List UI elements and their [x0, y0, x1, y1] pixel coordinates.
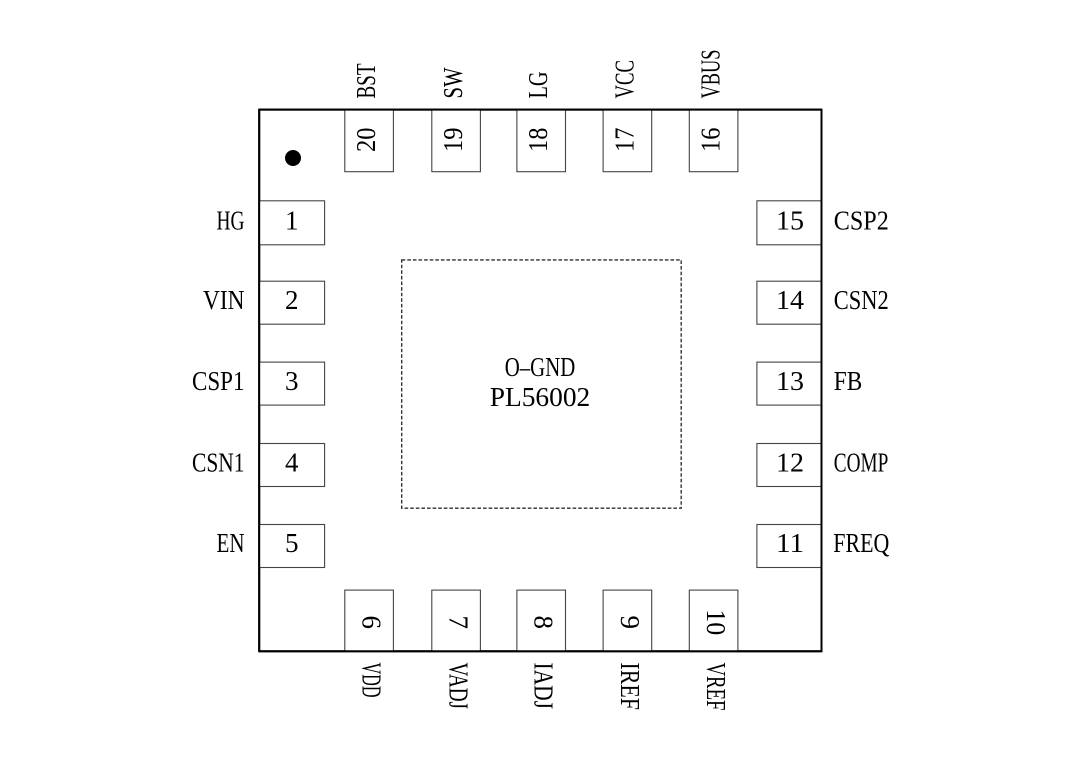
svg-text:CSP2: CSP2	[834, 205, 889, 235]
svg-text:FREQ: FREQ	[833, 528, 889, 558]
svg-text:IADJ: IADJ	[529, 663, 559, 710]
svg-text:LG: LG	[523, 72, 553, 99]
svg-text:CSN2: CSN2	[834, 285, 889, 315]
svg-text:20: 20	[351, 127, 381, 152]
svg-text:11: 11	[776, 528, 804, 558]
svg-text:16: 16	[696, 127, 726, 152]
svg-text:VADJ: VADJ	[444, 663, 474, 710]
svg-text:SW: SW	[438, 67, 468, 98]
svg-text:19: 19	[438, 127, 468, 152]
svg-text:14: 14	[776, 285, 805, 315]
svg-text:17: 17	[609, 127, 639, 152]
svg-text:3: 3	[285, 366, 299, 396]
svg-text:VREF: VREF	[701, 663, 731, 711]
svg-text:VIN: VIN	[203, 285, 245, 315]
svg-text:FB: FB	[834, 366, 863, 396]
svg-text:5: 5	[285, 528, 299, 558]
svg-text:O–GND: O–GND	[505, 351, 576, 382]
svg-text:VCC: VCC	[609, 60, 639, 99]
svg-text:4: 4	[285, 447, 299, 477]
svg-text:1: 1	[285, 205, 299, 235]
svg-text:18: 18	[523, 127, 553, 152]
svg-text:VBUS: VBUS	[696, 50, 726, 99]
svg-text:9: 9	[615, 615, 645, 629]
svg-text:EN: EN	[217, 528, 245, 558]
svg-text:10: 10	[701, 609, 731, 635]
svg-text:8: 8	[529, 615, 559, 629]
svg-text:7: 7	[444, 615, 474, 629]
svg-text:13: 13	[776, 366, 804, 396]
svg-text:COMP: COMP	[834, 447, 889, 477]
svg-text:CSN1: CSN1	[192, 447, 245, 477]
svg-text:CSP1: CSP1	[192, 366, 245, 396]
svg-text:HG: HG	[217, 205, 245, 235]
svg-text:6: 6	[357, 615, 387, 629]
svg-text:IREF: IREF	[615, 663, 645, 711]
svg-text:PL56002: PL56002	[490, 381, 591, 412]
svg-text:12: 12	[776, 447, 804, 477]
svg-text:BST: BST	[351, 63, 381, 98]
svg-text:2: 2	[285, 285, 299, 315]
svg-text:15: 15	[776, 205, 804, 235]
svg-text:VDD: VDD	[357, 663, 387, 698]
